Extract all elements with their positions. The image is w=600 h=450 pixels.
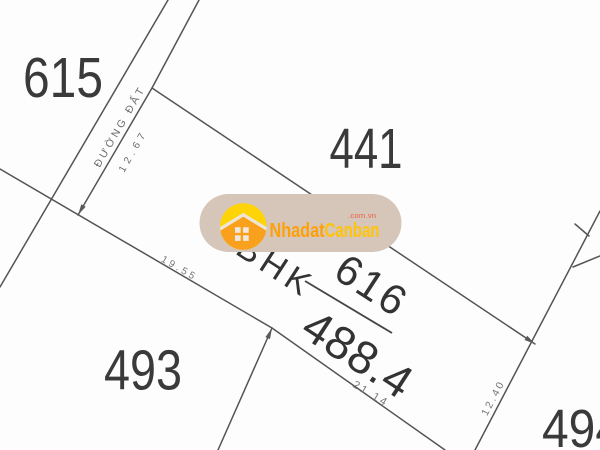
svg-text:441: 441 bbox=[330, 117, 403, 181]
svg-text:.com.vn: .com.vn bbox=[348, 211, 376, 220]
svg-text:615: 615 bbox=[23, 46, 103, 110]
svg-text:494: 494 bbox=[542, 400, 600, 450]
svg-text:493: 493 bbox=[104, 339, 182, 403]
svg-text:NhadatCanban: NhadatCanban bbox=[270, 219, 380, 242]
